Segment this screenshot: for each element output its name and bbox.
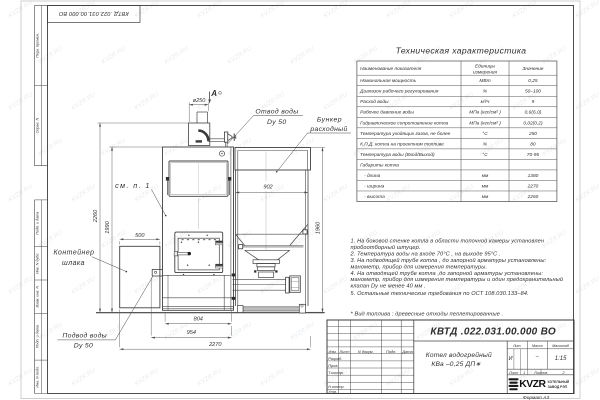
svg-text:мм: мм [482, 195, 489, 200]
svg-text:Котел водогрейный: Котел водогрейный [426, 351, 492, 359]
svg-text:мм: мм [482, 174, 489, 179]
svg-text:Листов: Листов [533, 371, 547, 375]
svg-text:Пров.: Пров. [328, 363, 338, 368]
svg-text:КВТД .022.031.00.000 ВО: КВТД .022.031.00.000 ВО [430, 327, 556, 338]
svg-text:Подп. и дата: Подп. и дата [35, 212, 39, 235]
svg-text:А: А [210, 89, 217, 98]
svg-text:Габариты котла: Габариты котла [360, 162, 399, 168]
svg-text:клапан Dу не менее 40 мм .: клапан Dу не менее 40 мм . [351, 284, 426, 290]
svg-text:Температура уходящих газов, не: Температура уходящих газов, не более [360, 131, 451, 137]
svg-text:манометр, прибор для измерения: манометр, прибор для измерения температу… [351, 276, 564, 283]
svg-text:70-95: 70-95 [527, 152, 540, 158]
svg-text:50–100: 50–100 [525, 89, 541, 95]
svg-text:804: 804 [194, 316, 203, 322]
svg-text:Лист: Лист [338, 349, 350, 354]
svg-text:Dy 50: Dy 50 [267, 119, 287, 126]
svg-text:- высота: - высота [360, 195, 385, 200]
svg-text:2260: 2260 [93, 209, 99, 223]
svg-text:Разраб.: Разраб. [328, 356, 342, 361]
svg-text:Контейнер: Контейнер [53, 248, 94, 256]
svg-text:МПа (кгс/см² ): МПа (кгс/см² ) [469, 110, 501, 116]
svg-text:МПа (кгс/см² ): МПа (кгс/см² ) [469, 120, 501, 126]
svg-text:МВт: МВт [479, 78, 490, 84]
svg-text:Подп.: Подп. [386, 349, 396, 354]
svg-text:Инв. N подл.: Инв. N подл. [35, 366, 39, 388]
svg-text:9: 9 [532, 99, 535, 105]
svg-text:1990: 1990 [105, 220, 111, 233]
svg-text:3. На подводящей трубе котла: 3. На подводящей трубе котла , до запорн… [351, 257, 547, 264]
svg-text:К.П.Д. котла на проектном топл: К.П.Д. котла на проектном топливе [360, 141, 444, 147]
svg-text:2270: 2270 [527, 183, 539, 189]
svg-text:1960: 1960 [315, 221, 321, 234]
svg-text:манометр, прибор для измерения: манометр, прибор для измерения температу… [351, 264, 488, 270]
svg-text:0,6(6,0): 0,6(6,0) [525, 110, 542, 116]
svg-text:80: 80 [530, 141, 536, 147]
svg-text:Перв. примен.: Перв. примен. [35, 33, 39, 58]
svg-text:Подп. и дата: Подп. и дата [35, 325, 39, 348]
svg-text:шлака: шлака [62, 260, 85, 267]
svg-text:* Вид топлива : древесные от: * Вид топлива : древесные отходы пеллети… [351, 312, 504, 318]
svg-text:1:15: 1:15 [555, 356, 567, 362]
svg-text:мм: мм [482, 184, 489, 189]
svg-text:Рабочее давление воды: Рабочее давление воды [360, 110, 414, 116]
svg-text:Техническая характеристика: Техническая характеристика [396, 46, 527, 56]
svg-text:КОТЕЛЬНЫЙ: КОТЕЛЬНЫЙ [548, 380, 570, 384]
svg-text:- ширина: - ширина [360, 184, 385, 189]
svg-text:Отвод воды: Отвод воды [255, 108, 298, 116]
svg-text:902: 902 [263, 184, 273, 190]
svg-text:Dу 50: Dу 50 [74, 343, 93, 350]
svg-text:Изм.: Изм. [328, 349, 336, 354]
svg-text:см. п. 1: см. п. 1 [115, 181, 151, 190]
svg-text:Масштаб: Масштаб [552, 344, 570, 348]
svg-text:Формат А3: Формат А3 [523, 395, 550, 400]
svg-text:Лит.: Лит. [512, 344, 521, 348]
svg-text:4. На отводящей трубе котла ,: 4. На отводящей трубе котла ,до запорной… [351, 270, 544, 277]
svg-text:1. На боковой стенке котла в: 1. На боковой стенке котла в области топ… [351, 238, 545, 245]
svg-text:0,02(0,2): 0,02(0,2) [523, 120, 543, 126]
svg-text:пробоотборный штуцер.: пробоотборный штуцер. [351, 244, 421, 251]
svg-text:ЗАВОД РЭП: ЗАВОД РЭП [548, 385, 568, 389]
svg-text:0,25: 0,25 [528, 78, 538, 84]
svg-text:2260: 2260 [527, 194, 539, 200]
svg-text:Справ. N: Справ. N [35, 118, 39, 134]
svg-text:измерения: измерения [473, 70, 497, 75]
svg-text:1380: 1380 [528, 173, 539, 179]
svg-text:%: % [483, 89, 488, 95]
svg-text:2: 2 [562, 371, 565, 375]
svg-text:°С: °С [482, 131, 488, 137]
svg-text:м³/ч: м³/ч [481, 99, 490, 105]
svg-text:Гидравлическое сопротивление к: Гидравлическое сопротивление котла [360, 120, 448, 126]
svg-text:°С: °С [482, 152, 488, 158]
svg-text:Расход воды: Расход воды [360, 99, 389, 105]
svg-text:И: И [509, 356, 513, 362]
svg-text:Бункер: Бункер [317, 116, 342, 123]
svg-text:Лист: Лист [508, 371, 518, 375]
svg-text:Наименование показателя: Наименование показателя [360, 66, 422, 72]
svg-text:ø250: ø250 [193, 98, 206, 104]
svg-text:954: 954 [187, 330, 196, 336]
svg-text:Диапазон рабочего регулировани: Диапазон рабочего регулирования [359, 89, 439, 95]
svg-text:2. Температура воды на входе: 2. Температура воды на входе 70°С , на в… [350, 252, 501, 258]
svg-text:Единицы: Единицы [475, 63, 496, 69]
svg-text:- длина: - длина [360, 173, 381, 179]
svg-text:N докум.: N докум. [358, 349, 374, 354]
svg-text:расходный: расходный [309, 125, 347, 133]
svg-text:КВа –0,25 ДП∗: КВа –0,25 ДП∗ [431, 361, 481, 368]
svg-text:Т.контр.: Т.контр. [328, 370, 344, 375]
svg-text:Инв. N дубл.: Инв. N дубл. [35, 253, 39, 274]
svg-text:KVZR: KVZR [519, 379, 546, 390]
svg-text:КВТД .022.031.00.000 ВО: КВТД .022.031.00.000 ВО [58, 10, 128, 16]
svg-text:Значение: Значение [522, 66, 543, 72]
svg-text:250: 250 [528, 131, 537, 137]
svg-text:500: 500 [135, 233, 145, 239]
svg-text:Дата: Дата [401, 349, 413, 354]
svg-text:Утв.: Утв. [328, 389, 337, 394]
svg-text:%: % [483, 141, 488, 147]
svg-text:Номинальная мощность: Номинальная мощность [360, 78, 417, 84]
svg-text:Температура воды (Вход/Выход): Температура воды (Вход/Выход) [360, 152, 435, 158]
svg-text:Масса: Масса [532, 344, 543, 348]
svg-text:5. Остальные технические треб: 5. Остальные технические требования по О… [351, 291, 529, 297]
svg-text:2270: 2270 [208, 342, 222, 348]
svg-text:1: 1 [523, 371, 525, 375]
svg-text:Подвод воды: Подвод воды [62, 332, 107, 340]
svg-text:Взам. инв. N: Взам. инв. N [35, 286, 39, 308]
